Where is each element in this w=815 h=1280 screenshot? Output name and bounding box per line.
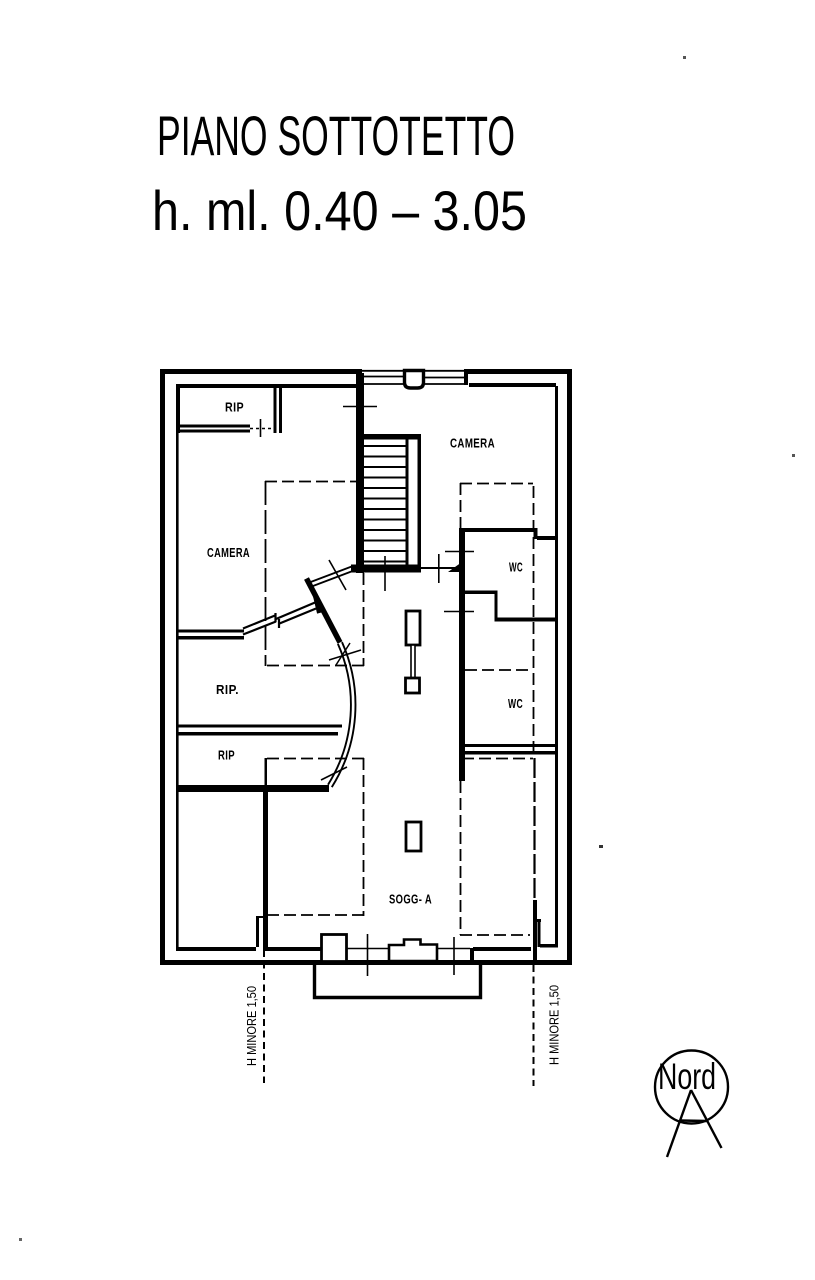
svg-text:Nord: Nord bbox=[658, 1056, 716, 1097]
svg-text:RIP: RIP bbox=[218, 748, 235, 763]
svg-text:PIANO SOTTOTETTO: PIANO SOTTOTETTO bbox=[157, 104, 515, 167]
svg-text:WC: WC bbox=[508, 696, 523, 711]
svg-text:RIP.: RIP. bbox=[216, 682, 239, 697]
svg-text:WC: WC bbox=[509, 560, 523, 575]
svg-text:H MINORE 1,50: H MINORE 1,50 bbox=[548, 985, 562, 1065]
svg-text:H MINORE 1,50: H MINORE 1,50 bbox=[245, 986, 259, 1066]
svg-text:RIP: RIP bbox=[225, 400, 244, 415]
svg-text:CAMERA: CAMERA bbox=[207, 545, 250, 560]
svg-text:h. ml. 0.40 – 3.05: h. ml. 0.40 – 3.05 bbox=[152, 179, 527, 242]
svg-text:CAMERA: CAMERA bbox=[450, 436, 495, 451]
svg-text:SOGG- A: SOGG- A bbox=[389, 892, 432, 907]
